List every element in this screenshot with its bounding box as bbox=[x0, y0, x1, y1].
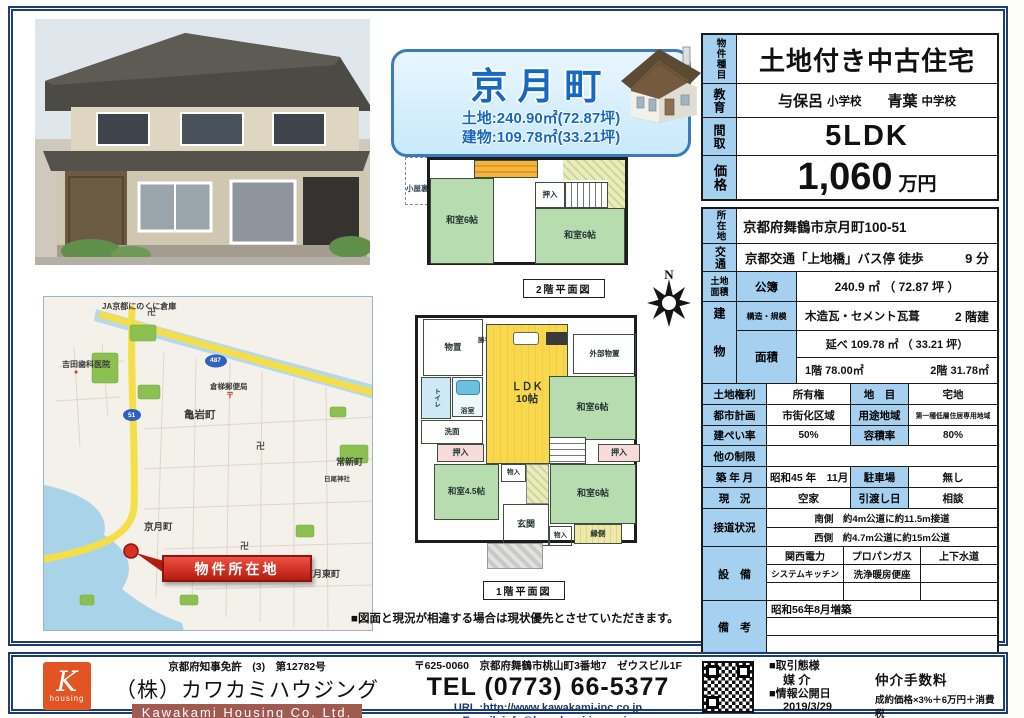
remarks-empty-line bbox=[767, 635, 997, 652]
temple-icon: 卍 bbox=[256, 439, 265, 452]
room-closet-2f bbox=[474, 160, 538, 178]
footer: K housing 京都府知事免許 (3) 第12782号 （株）カワカミハウジ… bbox=[8, 652, 1008, 714]
junior-high-suffix: 中学校 bbox=[922, 93, 957, 109]
qr-finder bbox=[737, 665, 750, 678]
compass-north-icon: N bbox=[639, 265, 699, 331]
room-oshiire-1f-left: 押入 bbox=[437, 444, 484, 462]
spec-handover-label: 引渡し日 bbox=[851, 488, 909, 508]
spec-status-value: 空家 bbox=[767, 488, 851, 508]
email-address: E-mail :info@kawakami-inc.co.jp bbox=[395, 715, 701, 718]
fee-value: 成約価格×3%＋6万円＋消費税 bbox=[875, 689, 1003, 718]
spec-type-value: 土地付き中古住宅 bbox=[737, 35, 997, 83]
spec-parking-value: 無し bbox=[909, 467, 997, 487]
spec-land-area-value: 240.9 ㎡ （ 72.87 坪 ） bbox=[797, 272, 997, 301]
spec-area-floors: 1階 78.00㎡ 2階 31.78㎡ bbox=[797, 357, 997, 384]
spec-address-value: 京都府舞鶴市京月町100-51 bbox=[737, 209, 997, 243]
spec-status-label: 現 況 bbox=[703, 488, 767, 508]
spec-parking-label: 駐車場 bbox=[851, 467, 909, 487]
structure-floors: 2 階建 bbox=[955, 308, 989, 325]
facility-cell bbox=[920, 583, 997, 600]
phone-number: TEL (0773) 66-5377 bbox=[395, 673, 701, 702]
facility-cell bbox=[843, 583, 920, 600]
temple-icon: 卍 bbox=[240, 539, 249, 552]
spec-type-label: 物件種目 bbox=[703, 35, 737, 83]
spec-bcr-label: 建ぺい率 bbox=[703, 426, 767, 445]
facility-cell: 洗浄暖房便座 bbox=[843, 565, 920, 582]
room-senmen: 洗面 bbox=[421, 420, 483, 444]
logo-housing-text: housing bbox=[49, 694, 84, 703]
floor-plan-1f: 物置 勝手口 ＬＤＫ 10帖 外部物置 和室6帖 トイレ 浴室 洗面 押入 押入… bbox=[407, 313, 647, 603]
fee-label: 仲介手数料 bbox=[875, 669, 1003, 689]
building-outline-2f: 押入 和室6帖 和室6帖 bbox=[427, 157, 628, 265]
room-washitsu6-2f-right: 和室6帖 bbox=[535, 208, 625, 264]
spec-land-right-label: 土地権利 bbox=[703, 384, 767, 404]
map-label-dental: 吉田歯科医院 bbox=[62, 359, 110, 370]
website-url: URL :http://www.kawakami-inc.co.jp bbox=[395, 702, 701, 715]
spec-area-label: 面積 bbox=[737, 331, 797, 383]
qr-finder bbox=[706, 665, 719, 678]
caption-2f: 2階平面図 bbox=[523, 279, 605, 298]
spec-access-value: 京都交通「上地橋」バス停 徒歩 9 分 bbox=[737, 244, 997, 271]
deal-type-value: 媒 介 bbox=[769, 673, 832, 687]
room-washitsu6-1f-lower: 和室6帖 bbox=[550, 464, 636, 524]
spec-far-value: 80% bbox=[909, 426, 997, 445]
facility-cell: 関西電力 bbox=[767, 547, 843, 564]
spec-built-label: 築 年 月 bbox=[703, 467, 767, 487]
spec-land-use-value: 宅地 bbox=[909, 384, 997, 404]
spec-land-use-label: 地 目 bbox=[851, 384, 909, 404]
map-dental-dot: ● bbox=[74, 369, 78, 376]
contact-block: 〒625-0060 京都府舞鶴市桃山町3番地7 ゼウスビル1F TEL (077… bbox=[395, 658, 701, 718]
spec-far-label: 容積率 bbox=[851, 426, 909, 445]
spec-structure-label: 構造・規模 bbox=[737, 302, 797, 330]
spec-table-main: 所在地 京都府舞鶴市京月町100-51 交通 京都交通「上地橋」バス停 徒歩 9… bbox=[701, 207, 999, 654]
company-name-en: Kawakami Housing Co. Ltd. bbox=[132, 704, 362, 718]
spec-table-top: 物件種目 土地付き中古住宅 教育 与保呂 小学校 青葉 中学校 間取 5LDK … bbox=[701, 33, 999, 201]
spec-edu-value: 与保呂 小学校 青葉 中学校 bbox=[737, 84, 997, 117]
house-illustration bbox=[613, 39, 705, 125]
facility-cell: 上下水道 bbox=[920, 547, 997, 564]
property-location-marker: 物件所在地 bbox=[162, 555, 312, 582]
access-minutes: 9 分 bbox=[965, 248, 989, 267]
svg-text:N: N bbox=[664, 267, 674, 282]
kitchen-stove bbox=[546, 332, 567, 345]
route-badge-51: 51 bbox=[128, 412, 135, 419]
property-photo bbox=[35, 19, 370, 265]
spec-zone-label: 用途地域 bbox=[851, 405, 909, 425]
room-oshiire-2f: 押入 bbox=[535, 182, 565, 208]
room-monooki: 物置 bbox=[423, 319, 483, 376]
facility-cell: システムキッチン bbox=[767, 565, 843, 582]
company-logo: K housing bbox=[43, 662, 91, 710]
fee-block: 仲介手数料 成約価格×3%＋6万円＋消費税 bbox=[875, 669, 1003, 718]
facility-cell bbox=[920, 565, 997, 582]
facility-cell bbox=[767, 583, 843, 600]
facility-grid: 関西電力 プロパンガス 上下水道 システムキッチン 洗浄暖房便座 bbox=[767, 547, 997, 600]
spec-structure-value: 木造瓦・セメント瓦葺 2 階建 bbox=[797, 302, 997, 330]
spec-layout-label: 間取 bbox=[703, 118, 737, 155]
area-floor1: 1階 78.00㎡ bbox=[805, 362, 864, 378]
room-washitsu45: 和室4.5帖 bbox=[434, 464, 499, 520]
room-outer-storage: 外部物置 bbox=[573, 334, 636, 374]
elementary-school-name: 与保呂 bbox=[778, 90, 823, 111]
spec-other-limit-label: 他の制限 bbox=[703, 446, 767, 466]
spec-address-label: 所在地 bbox=[703, 209, 737, 243]
room-genkan: 玄関 bbox=[503, 504, 549, 546]
publish-date-value: 2019/3/29 bbox=[769, 701, 832, 714]
spec-city-plan-value: 市街化区域 bbox=[767, 405, 851, 425]
qr-finder bbox=[706, 696, 719, 709]
room-engawa: 縁側 bbox=[574, 524, 622, 544]
entrance-porch bbox=[487, 543, 543, 569]
spec-area-total: 延べ 109.78 ㎡ （ 33.21 坪） bbox=[797, 331, 997, 357]
room-monoire-center: 物入 bbox=[501, 464, 526, 482]
map-label-shrine: 日尾神社 bbox=[324, 473, 350, 483]
junior-high-name: 青葉 bbox=[888, 90, 918, 111]
facility-cell: プロパンガス bbox=[843, 547, 920, 564]
room-toilet: トイレ bbox=[421, 377, 451, 419]
room-monoire-right: 物入 bbox=[549, 526, 572, 546]
company-block: 京都府知事免許 (3) 第12782号 （株）カワカミハウジング Kawakam… bbox=[101, 659, 393, 718]
building-outline-1f: 物置 勝手口 ＬＤＫ 10帖 外部物置 和室6帖 トイレ 浴室 洗面 押入 押入… bbox=[415, 315, 637, 543]
spec-remarks-value: 昭和56年8月増築 bbox=[767, 601, 997, 617]
spec-land-right-value: 所有権 bbox=[767, 384, 851, 404]
price-unit: 万円 bbox=[899, 169, 937, 196]
temple-icon: 卍 bbox=[147, 305, 156, 318]
spec-land-area-sub: 公簿 bbox=[737, 272, 797, 301]
spec-other-limit-value bbox=[767, 446, 997, 466]
license-number: 京都府知事免許 (3) 第12782号 bbox=[101, 659, 393, 674]
post-office-icon: 〒 bbox=[226, 390, 234, 401]
roof-hatch-2f-side bbox=[608, 180, 625, 208]
company-name-jp: （株）カワカミハウジング bbox=[101, 674, 393, 704]
road-line1: 南側 約4m公道に約11.5m接道 bbox=[767, 509, 997, 527]
spec-facility-label: 設 備 bbox=[703, 547, 767, 600]
caption-1f: 1階平面図 bbox=[483, 581, 565, 600]
price-number: 1,060 bbox=[797, 156, 892, 199]
spec-price-label: 価格 bbox=[703, 156, 737, 199]
spec-layout-value: 5LDK bbox=[737, 118, 997, 155]
banner-building-size: 建物:109.78㎡(33.21坪) bbox=[394, 129, 688, 148]
elementary-school-suffix: 小学校 bbox=[827, 93, 862, 109]
room-washitsu6-2f-left: 和室6帖 bbox=[430, 178, 494, 264]
deal-type-label: ■取引態様 bbox=[769, 660, 832, 673]
spec-remarks-label: 備 考 bbox=[703, 601, 767, 652]
plan-disclaimer: ■図面と現況が相違する場合は現状優先とさせていただきます。 bbox=[351, 610, 679, 626]
spec-road-label: 接道状況 bbox=[703, 509, 767, 546]
route-badge-487: 487 bbox=[210, 357, 221, 364]
remarks-empty-line bbox=[767, 617, 997, 634]
spec-land-area-label: 土地面積 bbox=[703, 272, 737, 301]
qr-code bbox=[702, 661, 754, 713]
kitchen-sink bbox=[513, 332, 539, 345]
spec-city-plan-label: 都市計画 bbox=[703, 405, 767, 425]
main-content-box: JA京都にのくに倉庫 卍 吉田歯科医院 ● 倉梯郵便局 〒 亀岩町 487 51… bbox=[8, 6, 1008, 646]
stairs-2f bbox=[565, 182, 608, 208]
room-oshiire-1f-right: 押入 bbox=[598, 444, 640, 462]
map-label-ja: JA京都にのくに倉庫 bbox=[102, 301, 176, 312]
logo-k-letter: K bbox=[57, 669, 78, 694]
access-route: 京都交通「上地橋」バス停 徒歩 bbox=[745, 248, 923, 267]
company-address: 〒625-0060 京都府舞鶴市桃山町3番地7 ゼウスビル1F bbox=[395, 658, 701, 673]
spec-bcr-value: 50% bbox=[767, 426, 851, 445]
publish-date-label: ■情報公開日 bbox=[769, 688, 832, 701]
spec-handover-value: 相談 bbox=[909, 488, 997, 508]
spec-price-value: 1,060 万円 bbox=[737, 156, 997, 199]
real-estate-flyer: JA京都にのくに倉庫 卍 吉田歯科医院 ● 倉梯郵便局 〒 亀岩町 487 51… bbox=[0, 0, 1024, 718]
spec-edu-label: 教育 bbox=[703, 84, 737, 117]
stairs-1f bbox=[549, 437, 586, 464]
roof-hatch-2f bbox=[563, 160, 625, 180]
location-map: JA京都にのくに倉庫 卍 吉田歯科医院 ● 倉梯郵便局 〒 亀岩町 487 51… bbox=[43, 296, 373, 631]
spec-zone-value: 第一種低層住居専用地域 bbox=[909, 405, 997, 425]
area-floor2: 2階 31.78㎡ bbox=[930, 362, 989, 378]
spec-access-label: 交通 bbox=[703, 244, 737, 271]
bathtub bbox=[456, 380, 480, 395]
structure-text: 木造瓦・セメント瓦葺 bbox=[805, 308, 920, 324]
deal-info-block: ■取引態様 媒 介 ■情報公開日 2019/3/29 bbox=[769, 660, 832, 714]
road-line2: 西側 約4.7m公道に約15m公道 bbox=[767, 527, 997, 546]
stairs-hatch-1f bbox=[526, 464, 549, 504]
room-washitsu6-1f-upper: 和室6帖 bbox=[549, 376, 636, 440]
spec-building-label: 建物 bbox=[703, 302, 737, 383]
map-label-kameiwa: 亀岩町 bbox=[184, 407, 216, 422]
map-label-kyogetsu: 京月町 bbox=[144, 519, 173, 533]
map-label-tsunemachi: 常新町 bbox=[336, 455, 363, 468]
spec-built-value: 昭和45 年 11月 bbox=[767, 467, 851, 487]
